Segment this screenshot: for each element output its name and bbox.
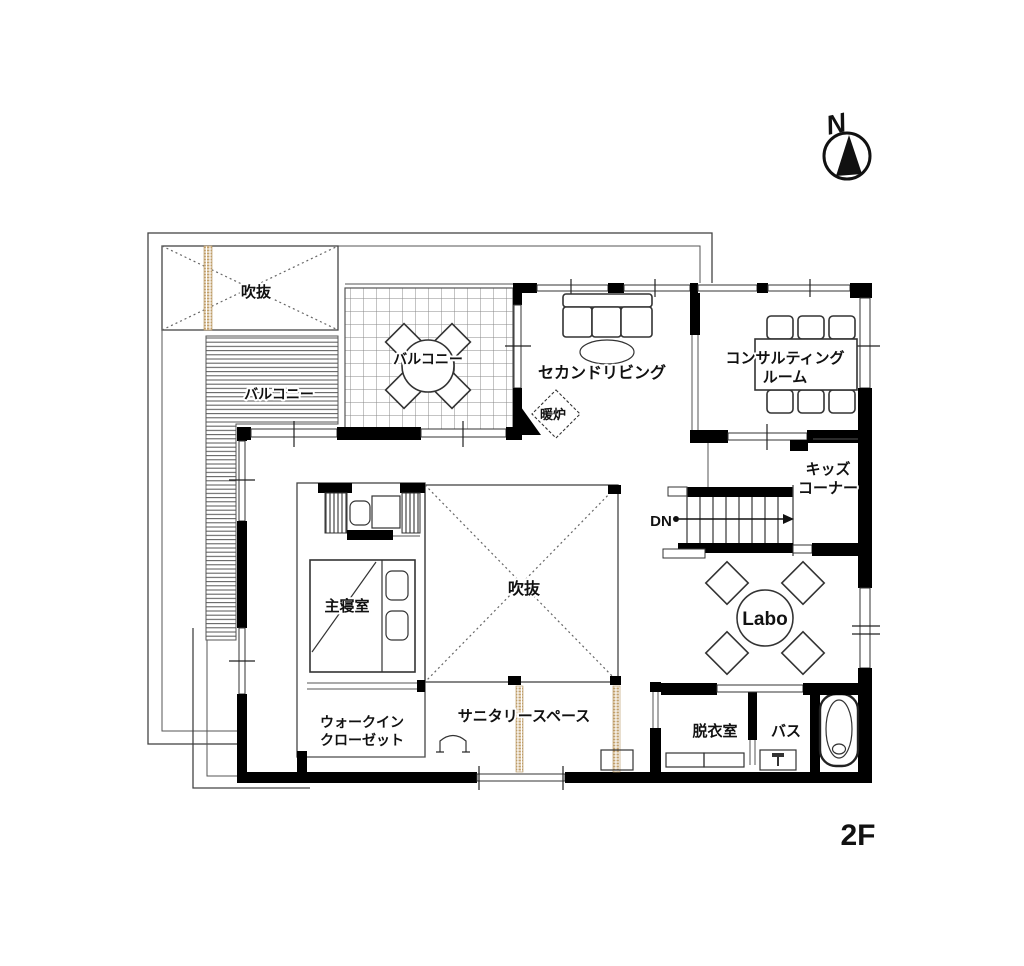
stairs-dn-label: DN: [650, 513, 672, 530]
room-label-dressing: 脱衣室: [692, 722, 737, 740]
compass-north: N: [823, 107, 870, 179]
floor-label: 2F: [840, 819, 875, 852]
room-label-void-center: 吹抜: [508, 579, 541, 598]
section-strip: [516, 686, 523, 772]
room-label-labo: Labo: [742, 609, 787, 630]
room-balcony-top: バルコニー: [345, 284, 513, 430]
room-label-kids-2: コーナー: [798, 480, 858, 497]
room-label-wic-1: ウォークイン: [320, 714, 404, 730]
sofa-icon: [563, 294, 652, 337]
closet-icon: [402, 493, 420, 533]
closet-icon: [325, 493, 347, 533]
room-label-wic-2: クローゼット: [320, 732, 404, 748]
bathtub-icon: [820, 694, 858, 766]
section-strip: [204, 246, 212, 330]
room-label-consulting-1: コンサルティング: [725, 349, 844, 367]
section-strip: [613, 686, 620, 772]
room-label-balcony-left: バルコニー: [244, 386, 314, 402]
room-label-sanitary: サニタリースペース: [458, 708, 590, 725]
room-label-balcony-top: バルコニー: [393, 351, 463, 367]
room-label-bath: バス: [771, 723, 801, 740]
stairs-arrow-start: [673, 516, 679, 522]
floor-plan-canvas: 吹抜 バルコニー バルコニー: [0, 0, 1024, 966]
room-label-master-bedroom: 主寝室: [324, 597, 369, 615]
room-label-second-living: セカンドリビング: [538, 363, 666, 382]
room-label-fireplace: 暖炉: [540, 407, 566, 422]
compass-n-label: N: [823, 107, 849, 141]
room-label-void-top: 吹抜: [241, 283, 272, 301]
floor-plan-drawing: 吹抜 バルコニー バルコニー: [0, 0, 1024, 966]
room-label-kids-1: キッズ: [805, 460, 850, 478]
bed-icon: [310, 560, 415, 672]
room-label-consulting-2: ルーム: [763, 369, 808, 386]
